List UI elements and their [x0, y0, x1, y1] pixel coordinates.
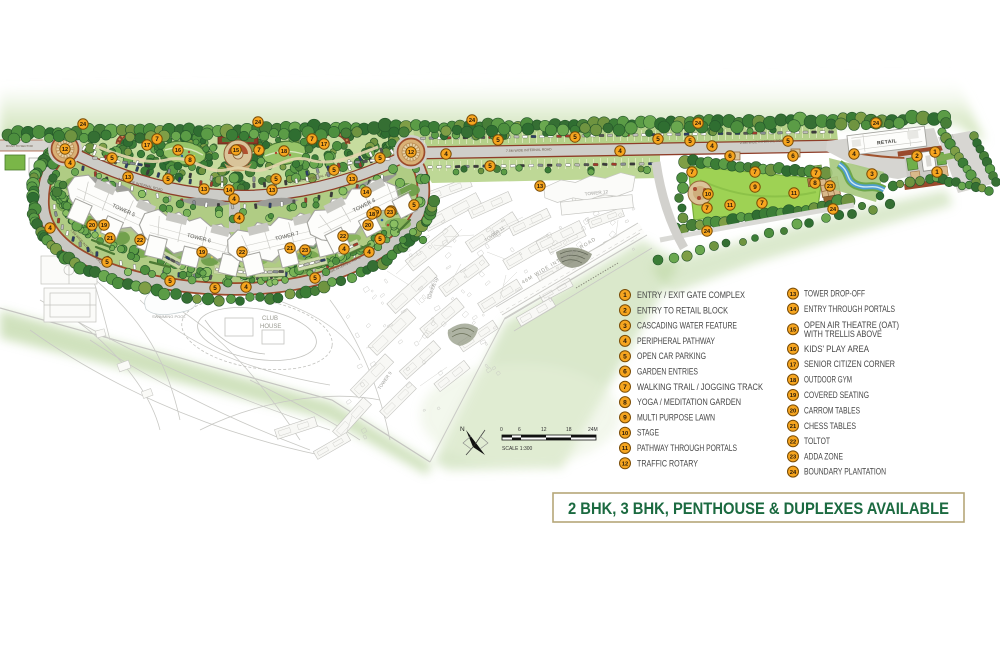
svg-text:5: 5 — [110, 155, 114, 162]
svg-text:20: 20 — [790, 409, 796, 415]
svg-text:20: 20 — [365, 223, 371, 229]
svg-text:24: 24 — [469, 118, 476, 124]
svg-text:2: 2 — [623, 308, 627, 315]
svg-text:ENTRY TO RETAIL BLOCK: ENTRY TO RETAIL BLOCK — [637, 305, 728, 315]
svg-text:23: 23 — [387, 210, 393, 216]
svg-text:5: 5 — [378, 236, 382, 243]
svg-text:OUTDOOR GYM: OUTDOOR GYM — [804, 375, 852, 385]
svg-text:2 BHK, 3 BHK, PENTHOUSE & DUPL: 2 BHK, 3 BHK, PENTHOUSE & DUPLEXES AVAIL… — [568, 500, 949, 518]
svg-text:22: 22 — [137, 238, 143, 244]
svg-text:7: 7 — [690, 169, 694, 176]
svg-text:13: 13 — [125, 175, 131, 181]
svg-text:N: N — [460, 426, 465, 433]
svg-text:18: 18 — [790, 378, 797, 384]
svg-text:CHESS TABLES: CHESS TABLES — [804, 421, 856, 431]
svg-text:14: 14 — [226, 188, 233, 194]
svg-text:24M: 24M — [588, 427, 598, 433]
svg-text:10: 10 — [705, 192, 711, 198]
svg-text:7: 7 — [257, 147, 261, 154]
svg-text:16: 16 — [175, 148, 181, 154]
svg-text:16: 16 — [790, 347, 797, 353]
svg-text:CASCADING WATER FEATURE: CASCADING WATER FEATURE — [637, 321, 737, 331]
svg-text:7: 7 — [753, 169, 757, 176]
svg-text:TRAFFIC ROTARY: TRAFFIC ROTARY — [637, 458, 698, 468]
svg-text:4: 4 — [618, 148, 622, 155]
svg-text:5: 5 — [105, 259, 109, 266]
svg-text:18: 18 — [369, 212, 375, 218]
svg-text:MULTI PURPOSE LAWN: MULTI PURPOSE LAWN — [637, 412, 715, 422]
svg-text:CLUB: CLUB — [262, 316, 278, 322]
svg-text:5: 5 — [213, 285, 217, 292]
svg-text:24: 24 — [695, 121, 702, 127]
svg-text:STAGE: STAGE — [637, 428, 659, 438]
svg-text:24: 24 — [790, 470, 797, 476]
svg-text:5: 5 — [656, 136, 660, 143]
svg-text:13: 13 — [201, 187, 207, 193]
svg-text:1: 1 — [623, 292, 627, 299]
svg-text:BOUNDARY PLANTATION: BOUNDARY PLANTATION — [804, 467, 886, 477]
svg-text:4: 4 — [232, 196, 236, 203]
svg-text:13: 13 — [537, 184, 543, 190]
svg-text:GARDEN ENTRIES: GARDEN ENTRIES — [637, 367, 698, 377]
svg-text:21: 21 — [287, 246, 293, 252]
svg-text:1: 1 — [935, 169, 939, 176]
svg-text:7: 7 — [814, 170, 818, 177]
svg-text:7: 7 — [623, 384, 627, 391]
svg-text:13: 13 — [349, 177, 355, 183]
svg-text:7: 7 — [705, 205, 709, 212]
svg-text:HOUSE: HOUSE — [260, 324, 281, 330]
svg-text:2: 2 — [915, 153, 919, 160]
svg-text:ADDA ZONE: ADDA ZONE — [804, 451, 843, 461]
svg-text:10: 10 — [622, 431, 628, 437]
svg-text:6: 6 — [728, 153, 732, 160]
svg-text:TOLTOT: TOLTOT — [804, 436, 830, 446]
svg-text:SWIMMING POOL: SWIMMING POOL — [152, 314, 186, 319]
svg-text:SCALE 1:300: SCALE 1:300 — [502, 446, 533, 452]
svg-text:4: 4 — [244, 284, 248, 291]
svg-text:4: 4 — [237, 215, 241, 222]
svg-text:20: 20 — [89, 223, 95, 229]
svg-text:WITH TRELLIS ABOVE: WITH TRELLIS ABOVE — [804, 329, 882, 339]
svg-text:19: 19 — [790, 393, 797, 399]
svg-text:21: 21 — [790, 424, 797, 430]
svg-text:17: 17 — [321, 142, 327, 148]
svg-text:4: 4 — [852, 151, 856, 158]
svg-text:9: 9 — [623, 415, 627, 422]
svg-text:13: 13 — [269, 188, 275, 194]
svg-text:3: 3 — [870, 171, 874, 178]
svg-text:18: 18 — [281, 149, 287, 155]
svg-text:5: 5 — [274, 176, 278, 183]
svg-text:PATHWAY THROUGH PORTALS: PATHWAY THROUGH PORTALS — [637, 443, 737, 453]
svg-text:19: 19 — [199, 250, 205, 256]
svg-text:1: 1 — [933, 149, 937, 156]
svg-text:12: 12 — [62, 147, 68, 153]
svg-text:12: 12 — [408, 150, 414, 156]
svg-text:7: 7 — [155, 136, 159, 143]
svg-text:TOWER DROP-OFF: TOWER DROP-OFF — [804, 289, 865, 299]
svg-text:COVERED SEATING: COVERED SEATING — [804, 390, 869, 400]
svg-text:6: 6 — [623, 369, 627, 376]
svg-text:15: 15 — [233, 148, 239, 154]
svg-text:WALKING TRAIL / JOGGING TRACK: WALKING TRAIL / JOGGING TRACK — [637, 382, 763, 392]
svg-text:5: 5 — [166, 176, 170, 183]
svg-text:ENTRY / EXIT GATE COMPLEX: ENTRY / EXIT GATE COMPLEX — [637, 290, 745, 300]
svg-text:5: 5 — [332, 167, 336, 174]
svg-text:5: 5 — [573, 134, 577, 141]
svg-text:4: 4 — [342, 246, 346, 253]
svg-text:ROAD TO SECTOR: ROAD TO SECTOR — [6, 144, 34, 148]
svg-text:24: 24 — [873, 121, 880, 127]
svg-text:11: 11 — [727, 203, 733, 209]
svg-text:YOGA / MEDITATION GARDEN: YOGA / MEDITATION GARDEN — [637, 397, 741, 407]
svg-text:11: 11 — [622, 446, 629, 452]
svg-text:3: 3 — [623, 323, 627, 330]
svg-text:5: 5 — [168, 278, 172, 285]
svg-text:22: 22 — [340, 234, 346, 240]
svg-text:23: 23 — [827, 184, 833, 190]
svg-text:4: 4 — [68, 160, 72, 167]
svg-text:13: 13 — [790, 292, 797, 298]
svg-text:6: 6 — [518, 427, 521, 433]
svg-text:14: 14 — [790, 307, 797, 313]
svg-text:14: 14 — [363, 190, 370, 196]
svg-text:22: 22 — [239, 250, 245, 256]
svg-text:ENTRY THROUGH PORTALS: ENTRY THROUGH PORTALS — [804, 304, 895, 314]
svg-text:7: 7 — [310, 136, 314, 143]
svg-text:4: 4 — [48, 225, 52, 232]
svg-text:5: 5 — [313, 275, 317, 282]
svg-text:0: 0 — [500, 427, 503, 433]
svg-text:8: 8 — [813, 180, 817, 187]
svg-text:5: 5 — [412, 202, 416, 209]
svg-text:22: 22 — [790, 439, 796, 445]
svg-text:6: 6 — [791, 153, 795, 160]
svg-text:12: 12 — [622, 462, 628, 468]
svg-text:21: 21 — [107, 236, 113, 242]
svg-text:OPEN CAR PARKING: OPEN CAR PARKING — [637, 351, 706, 361]
svg-text:4: 4 — [623, 338, 627, 345]
svg-text:11: 11 — [791, 191, 797, 197]
svg-text:4: 4 — [710, 143, 714, 150]
svg-text:5: 5 — [496, 137, 500, 144]
svg-text:15: 15 — [790, 327, 797, 333]
svg-text:SENIOR CITIZEN CORNER: SENIOR CITIZEN CORNER — [804, 359, 895, 369]
svg-text:24: 24 — [255, 120, 262, 126]
svg-text:23: 23 — [790, 455, 797, 461]
svg-text:8: 8 — [188, 157, 192, 164]
svg-text:5: 5 — [623, 353, 627, 360]
svg-text:18: 18 — [566, 427, 572, 433]
svg-text:12: 12 — [541, 427, 547, 433]
svg-text:24: 24 — [704, 229, 711, 235]
svg-text:9: 9 — [753, 184, 757, 191]
svg-text:17: 17 — [790, 362, 796, 368]
svg-text:4: 4 — [444, 151, 448, 158]
svg-text:5: 5 — [378, 155, 382, 162]
svg-text:24: 24 — [80, 122, 87, 128]
svg-text:7: 7 — [760, 200, 764, 207]
svg-text:19: 19 — [101, 223, 107, 229]
svg-text:5: 5 — [786, 138, 790, 145]
svg-text:17: 17 — [144, 143, 150, 149]
svg-text:5: 5 — [488, 163, 492, 170]
svg-text:4: 4 — [367, 249, 371, 256]
svg-text:8: 8 — [623, 399, 627, 406]
svg-text:23: 23 — [302, 248, 308, 254]
svg-text:5: 5 — [688, 138, 692, 145]
svg-text:PERIPHERAL PATHWAY: PERIPHERAL PATHWAY — [637, 336, 715, 346]
svg-text:24: 24 — [830, 207, 837, 213]
svg-text:CARROM TABLES: CARROM TABLES — [804, 405, 860, 415]
svg-text:KIDS' PLAY AREA: KIDS' PLAY AREA — [804, 344, 869, 354]
